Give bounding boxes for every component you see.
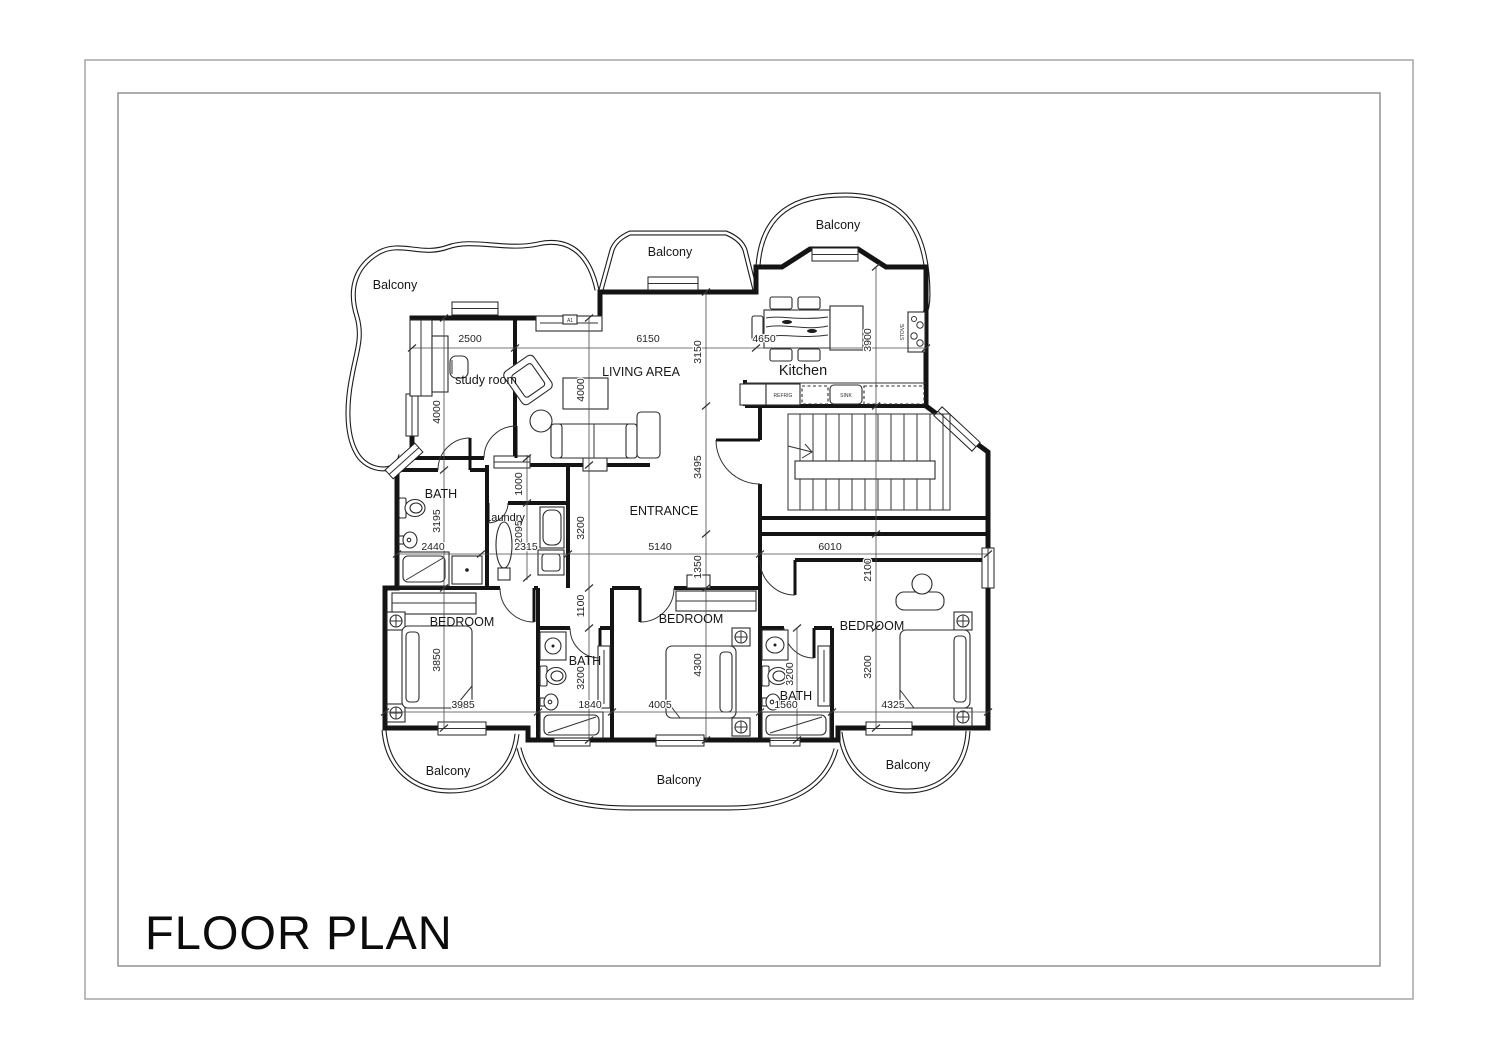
- bed-post: [732, 628, 750, 646]
- bathtub-icon: [540, 507, 564, 548]
- counter: [864, 386, 924, 404]
- door-icon: [438, 438, 470, 470]
- dim-kitchen-depth: 3900: [862, 328, 874, 352]
- bath1-fixtures: [0, 0, 482, 586]
- window-icon: [866, 722, 912, 735]
- dim-bath2-width: 1840: [578, 699, 602, 711]
- bed-post: [954, 708, 972, 726]
- label-bath-1: BATH: [425, 487, 457, 501]
- bed-post: [732, 718, 750, 736]
- dim-kitchen-width: 4650: [752, 333, 776, 345]
- bench: [896, 592, 944, 610]
- dim-hall-width: 1000: [513, 472, 525, 496]
- stove: STOVE: [900, 312, 925, 352]
- dim-entrance-col: 1350: [692, 555, 704, 579]
- window-icon: [385, 443, 423, 479]
- bidet-icon: [399, 532, 417, 548]
- bedroom3-furniture: [896, 574, 972, 726]
- kitchen-furniture: REFRIG SINK STOVE: [740, 297, 926, 405]
- dim-entrance-height: 3495: [692, 455, 704, 479]
- pillow: [954, 636, 966, 702]
- dim-study-width: 2500: [458, 333, 482, 345]
- label-bath-3: BATH: [780, 689, 812, 703]
- dim-bath2-height: 3200: [575, 666, 587, 690]
- drawing-sheet: A1 REFRIG SINK: [0, 0, 1500, 1061]
- kitchen-island: [830, 306, 863, 350]
- window-icon: [406, 394, 418, 436]
- stool: [912, 574, 932, 594]
- bidet-icon: [540, 694, 558, 710]
- counter: [802, 386, 828, 404]
- dim-bed2-width: 4005: [648, 699, 672, 711]
- sofa: [551, 412, 660, 458]
- annotation-marker-label: A1: [567, 318, 573, 324]
- dim-hall-right-width: 6010: [818, 541, 842, 553]
- window-icon: [438, 722, 486, 735]
- ironing-board-icon: [496, 522, 512, 580]
- label-balcony-top-middle: Balcony: [648, 245, 693, 259]
- shower-icon: [399, 552, 449, 586]
- toilet-icon: [399, 498, 425, 518]
- pillow: [720, 652, 732, 712]
- dim-bed1-width: 3985: [451, 699, 475, 711]
- dim-living-height: 3150: [692, 340, 704, 364]
- dining-chair: [798, 297, 820, 309]
- dim-study-height: 4000: [431, 400, 443, 424]
- door-icon: [484, 426, 516, 458]
- pillow: [406, 632, 419, 702]
- label-bedroom-1: BEDROOM: [430, 615, 495, 629]
- toilet-icon: [540, 666, 566, 686]
- wall-column: [583, 458, 607, 471]
- bed-post: [387, 704, 405, 722]
- window-icon: [452, 302, 498, 315]
- window-icon: [656, 735, 704, 746]
- bath3-fixtures: [762, 630, 830, 738]
- label-bedroom-3: BEDROOM: [840, 619, 905, 633]
- label-kitchen: Kitchen: [779, 363, 827, 379]
- dining-chair: [770, 297, 792, 309]
- bed-post: [954, 612, 972, 630]
- stove-label: STOVE: [900, 323, 906, 341]
- inner-sheet-border: [118, 93, 1380, 966]
- dim-bath1-height: 3195: [431, 509, 443, 533]
- outer-sheet-border: [85, 60, 1413, 999]
- dim-bath1-width: 2440: [421, 541, 445, 553]
- dim-entrance-width: 5140: [648, 541, 672, 553]
- dining-chair: [770, 349, 792, 361]
- label-bedroom-2: BEDROOM: [659, 612, 724, 626]
- counter: [740, 384, 766, 405]
- dim-bed3-width: 4325: [881, 699, 905, 711]
- window-icon: [648, 277, 698, 290]
- label-study-room: study room: [455, 373, 517, 387]
- bed-post: [387, 612, 405, 630]
- dim-corridor: 1100: [575, 595, 587, 618]
- dim-bed1-height: 3850: [431, 648, 443, 672]
- dim-bed3-top: 2100: [862, 558, 874, 582]
- dining-chair: [798, 349, 820, 361]
- shower-icon: [762, 712, 830, 738]
- dim-laundry-width: 2315: [514, 541, 538, 553]
- dim-living-depth: 4000: [575, 378, 587, 402]
- shower-icon: [540, 712, 603, 738]
- door-icon: [760, 560, 795, 595]
- dim-bed2-height: 4300: [692, 653, 704, 677]
- label-balcony-top-right: Balcony: [816, 218, 861, 232]
- label-bath-2: BATH: [569, 654, 601, 668]
- window-icon: [812, 248, 858, 261]
- side-table: [530, 410, 552, 432]
- bed: [900, 630, 970, 708]
- dim-bath3-height: 3200: [784, 662, 796, 686]
- refrigerator-label: REFRIG: [774, 393, 793, 399]
- label-living-area: LIVING AREA: [602, 365, 680, 379]
- door-icon: [500, 588, 534, 622]
- window-icon: [494, 456, 530, 468]
- door-icon: [716, 440, 760, 484]
- sink-label: SINK: [840, 393, 852, 399]
- dim-living-width: 6150: [636, 333, 660, 345]
- staircase: [788, 414, 950, 510]
- dim-bed3-height: 3200: [862, 655, 874, 679]
- label-balcony-bottom-left: Balcony: [426, 764, 471, 778]
- page-title: FLOOR PLAN: [145, 906, 453, 959]
- floor-plan-drawing: A1 REFRIG SINK: [0, 0, 1500, 1061]
- label-entrance: ENTRANCE: [630, 504, 699, 518]
- label-balcony-top-left: Balcony: [373, 278, 418, 292]
- label-laundry: Laundry: [485, 512, 525, 524]
- label-balcony-bottom-right: Balcony: [886, 758, 931, 772]
- dim-laundry-col: 3200: [575, 516, 587, 540]
- label-balcony-bottom-middle: Balcony: [657, 773, 702, 787]
- desk: [432, 336, 448, 392]
